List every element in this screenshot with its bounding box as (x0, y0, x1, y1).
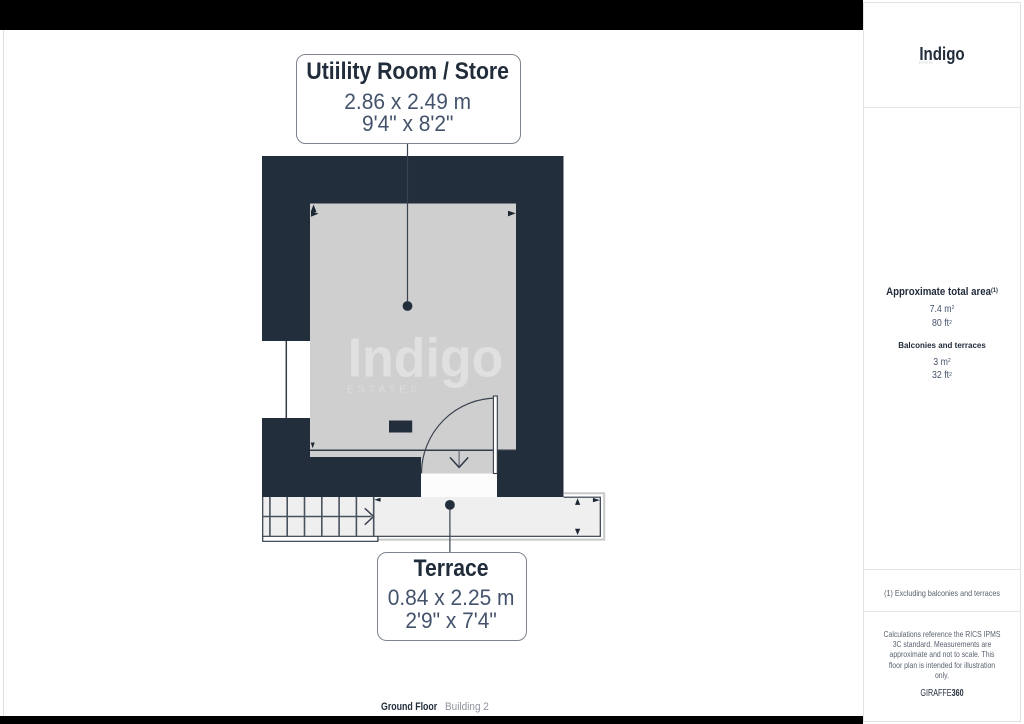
svg-text:ESTATES: ESTATES (347, 384, 421, 395)
svg-text:Indigo: Indigo (348, 327, 504, 389)
